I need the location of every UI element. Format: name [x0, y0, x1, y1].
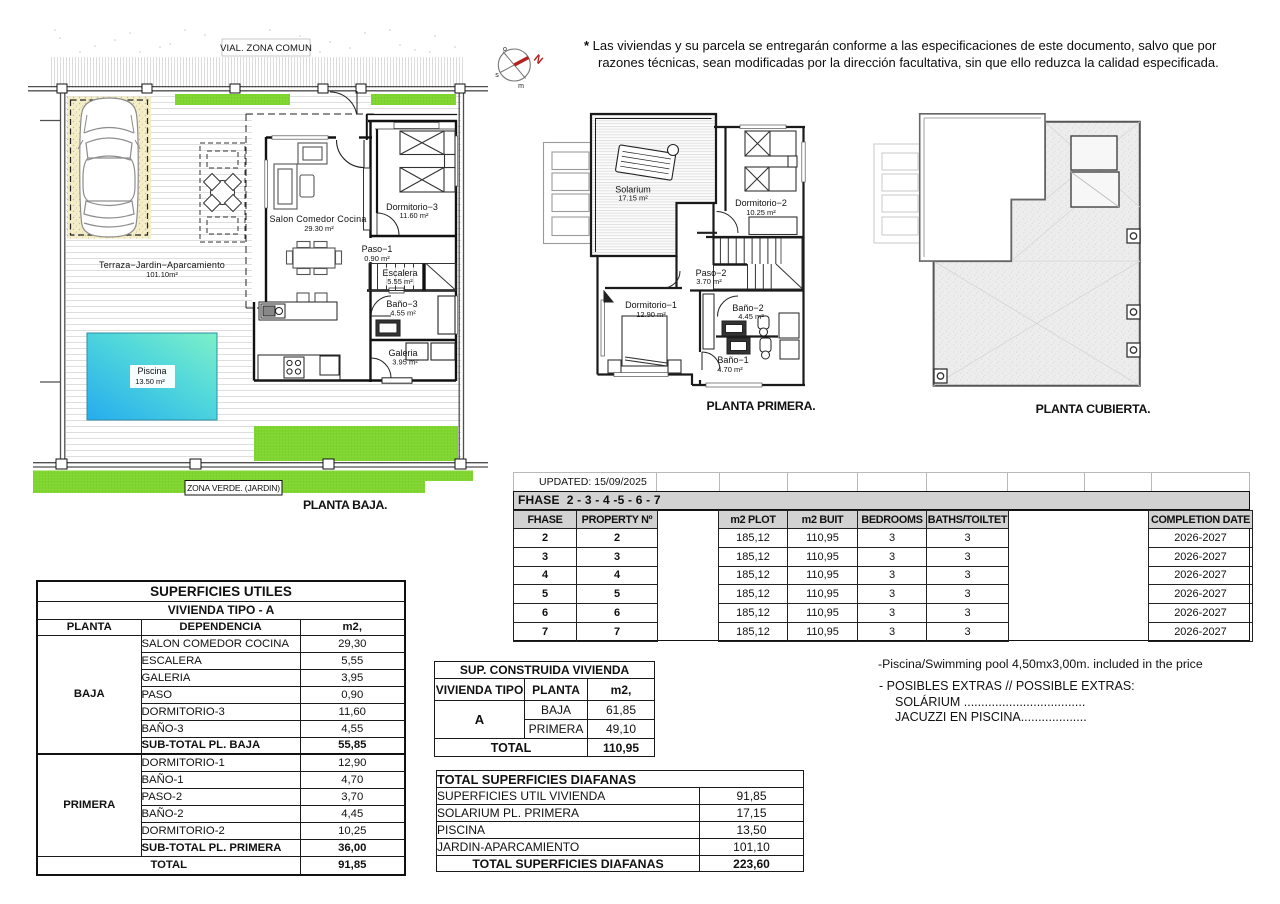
svg-text:PLANTA CUBIERTA.: PLANTA CUBIERTA. — [1036, 402, 1151, 416]
svg-text:0.90 m²: 0.90 m² — [364, 254, 390, 263]
svg-text:29.30 m²: 29.30 m² — [304, 224, 334, 233]
svg-text:101.10m²: 101.10m² — [146, 270, 178, 279]
svg-text:3.95 m²: 3.95 m² — [392, 358, 418, 367]
svg-text:s: s — [495, 72, 499, 79]
svg-text:Dormitorio−2: Dormitorio−2 — [735, 198, 787, 208]
svg-text:Terraza−Jardin−Aparcamiento: Terraza−Jardin−Aparcamiento — [99, 260, 225, 270]
svg-text:m: m — [518, 83, 524, 90]
svg-text:17.15 m²: 17.15 m² — [618, 194, 648, 203]
svg-text:12.90 m²: 12.90 m² — [636, 310, 666, 319]
svg-text:4.70 m²: 4.70 m² — [717, 365, 743, 374]
svg-text:3.70 m²: 3.70 m² — [696, 277, 722, 286]
svg-text:Baño−1: Baño−1 — [717, 355, 748, 365]
svg-text:13.50 m²: 13.50 m² — [135, 377, 165, 386]
svg-text:ZONA VERDE. (JARDIN): ZONA VERDE. (JARDIN) — [187, 483, 280, 493]
svg-text:Dormitorio−1: Dormitorio−1 — [625, 300, 677, 310]
svg-text:VIAL. ZONA COMUN: VIAL. ZONA COMUN — [220, 43, 312, 54]
svg-text:N: N — [531, 53, 545, 67]
svg-text:Galeria: Galeria — [388, 348, 417, 358]
svg-text:11.60 m²: 11.60 m² — [399, 211, 429, 220]
svg-text:4.45 m²: 4.45 m² — [738, 312, 764, 321]
svg-text:Salon Comedor Cocina: Salon Comedor Cocina — [269, 214, 366, 224]
svg-text:5.55 m²: 5.55 m² — [387, 277, 413, 286]
svg-text:4.55 m²: 4.55 m² — [390, 309, 416, 318]
svg-text:10.25 m²: 10.25 m² — [746, 208, 776, 217]
svg-text:Piscina: Piscina — [137, 366, 166, 376]
svg-text:PLANTA PRIMERA.: PLANTA PRIMERA. — [706, 399, 815, 413]
svg-text:Baño−3: Baño−3 — [386, 299, 417, 309]
svg-text:o: o — [503, 46, 507, 53]
svg-text:Paso−1: Paso−1 — [362, 244, 393, 254]
svg-text:PLANTA BAJA.: PLANTA BAJA. — [303, 498, 387, 512]
